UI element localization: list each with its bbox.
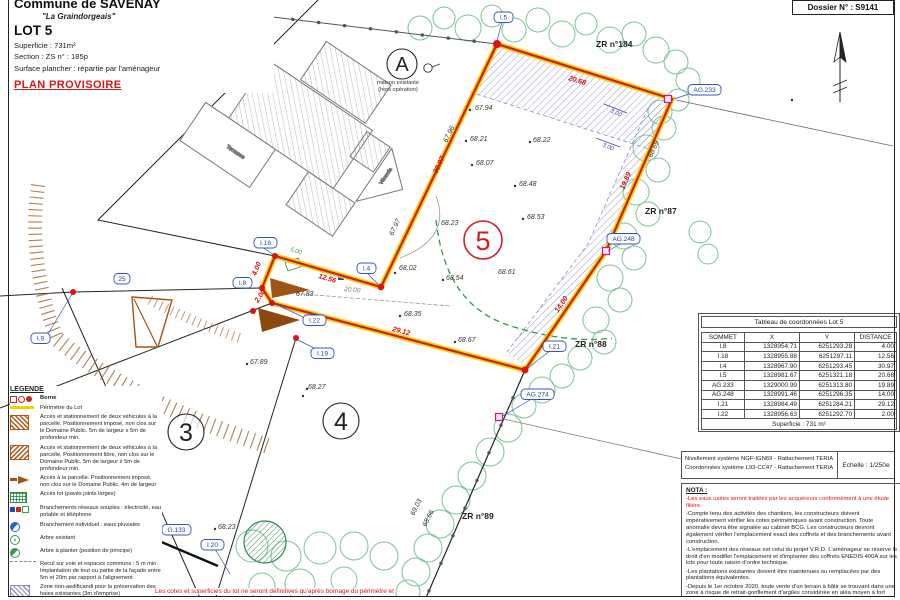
coord-row: I.51328981.676251321.1820.68 [702,371,897,381]
elevation-label: 68.21 [470,136,488,143]
legend-item-paves: Accès lot (pavés joints larges) [10,491,162,503]
coord-table-footer: Superficie : 731 m² [701,419,897,430]
legend-item-acces-parcelle: Accès à la parcelle. Positionnement impo… [10,475,162,489]
access-arrow-icon [10,475,40,484]
col-header: SOMMET [702,333,745,343]
point-label-i18: I.18 [254,238,277,249]
point-label-25: 25 [114,274,130,285]
non-aedificandi-icon [10,584,40,598]
dim-label: 4.00 [249,260,263,277]
coord-row: I.81328954.716251293.284.00 [702,342,897,352]
access-imposed-icon [10,414,40,430]
svg-text:AG.233: AG.233 [693,87,716,94]
elevation-label: 68.66 [422,509,436,528]
point-label-i21: I.21 [543,341,566,352]
legend-item-branchements: Branchements réseaux souples : électrici… [10,505,162,519]
point-label-i5: I.5 [494,12,513,23]
surface-line: Surface plancher : répartie par l'aménag… [14,64,274,73]
existing-tree-icon [10,535,40,546]
place-name: "La Graindorgeais" [42,12,274,21]
elevation-label: 68.22 [533,137,551,144]
point-label-i22: I.22 [303,315,326,326]
elevation-label: 68.53 [527,214,545,221]
legend: LEGENDE Borne Périmètre du Lot Accès et … [10,386,162,600]
paved-access-icon [10,491,40,503]
coord-header-row: SOMMET X Y DISTANCE [702,333,897,343]
nota-item: -Les eaux usées seront traitées par les … [686,496,898,510]
point-label-i20: I.20 [201,540,224,551]
superficie-line: Superficie : 731m² [14,41,274,50]
col-header: Y [799,333,854,343]
svg-text:G.133: G.133 [168,527,186,534]
elevation-label: 68.35 [404,311,422,318]
svg-text:I.8: I.8 [239,280,247,287]
coordinates-table: Tableau de coordonnées Lot 5 SOMMET X Y … [698,313,900,432]
perimeter-line-icon [10,405,40,409]
access-free-icon [10,445,40,461]
elevation-label: 69.03 [410,498,424,517]
point-label-i8: I.8 [233,278,252,289]
svg-text:I.9: I.9 [37,336,45,343]
dim-label-gray: 20.00 [343,286,361,295]
svg-text:AG.274: AG.274 [526,392,549,399]
lot-circle-5: 5 [464,221,502,259]
section-line: Section : ZS n° : 185p [14,52,274,61]
svg-text:I.22: I.22 [309,318,320,325]
nota-item: -L'emplacement des réseaux est celui du … [686,547,898,567]
svg-text:I.21: I.21 [549,344,560,351]
zone-non-aedificandi [470,47,670,368]
elevation-label: 68.23 [441,220,459,227]
col-header: DISTANCE [855,333,897,343]
col-header: X [744,333,799,343]
point-label-i4: I.4 [357,263,376,274]
north-arrow-icon [833,32,847,102]
plan-sheet: Terrasse Véranda [0,0,900,600]
svg-text:AG.248: AG.248 [612,236,635,243]
footer-disclaimer: Les cotes et superficies du lot ne seron… [155,588,394,595]
lot-circle-3: 3 [168,414,204,450]
elevation-label: 68.61 [498,269,516,276]
rainwater-icon [10,522,40,533]
legend-item-arbre-existant: Arbre existant [10,535,162,546]
point-label-i9: I.9 [31,333,50,344]
elevation-label: 67.83 [296,291,314,298]
point-label-g133: G.133 [162,525,191,536]
elevation-label: 68.67 [458,337,477,344]
commune-title: Commune de SAVENAY [14,0,274,11]
svg-text:I.5: I.5 [500,15,508,22]
scale-label: Echelle : 1/250e [838,452,894,478]
tree-to-plant-icon [10,548,40,559]
network-connections-icon [10,505,40,513]
elevation-label: 68.48 [519,181,537,188]
lot-circle-a: A [387,49,417,79]
dossier-number: Dossier N° : S9141 [792,0,894,15]
svg-text:3: 3 [179,419,193,447]
nota-item: -Compte tenu des activités des chantiers… [686,511,898,545]
nota-title: NOTA : [686,487,898,494]
borne-icon [10,395,40,403]
tree-cluster-east [512,116,718,418]
zone-label-zr184: ZR n°184 [596,39,633,49]
elevation-label: 67.89 [250,359,268,366]
coord-row: I.181328955.886251297.1112.56 [702,352,897,362]
legend-item-acces-libre: Accès et stationnement de deux véhicules… [10,445,162,473]
coord-row: I.41328967.906251293.4530.97 [702,361,897,371]
svg-text:A: A [395,54,409,76]
access-markers [132,258,344,347]
house-note-line2: (hors opération) [378,87,418,93]
survey-station-icon [424,64,440,72]
setback-line-icon [10,561,40,563]
nota-item: -Les plantations existantes doivent être… [686,569,898,583]
nota-box: NOTA : -Les eaux usées seront traitées p… [681,483,900,600]
elevation-label: 68.27 [308,384,327,391]
title-block: Commune de SAVENAY "La Graindorgeais" LO… [14,0,274,93]
svg-text:I.20: I.20 [207,542,218,549]
svg-text:4: 4 [334,408,348,436]
svg-text:I.18: I.18 [260,240,271,247]
elevation-label: 67.94 [475,105,493,112]
coord-row: AG.2331329000.996251313.8019.89 [702,380,897,390]
elevation-label: 68.23 [218,524,236,531]
elevation-label: 68.07 [476,160,495,167]
coordonnees-line: Coordonnées système L93-CC47 - Rattachem… [685,464,834,473]
zone-label-zr87: ZR n°87 [645,206,677,216]
coord-row: I.211328984.496251284.2129.12 [702,400,897,410]
zone-label-zr88: ZR n°88 [575,339,607,349]
svg-text:25: 25 [118,276,126,283]
zone-label-zr89: ZR n°89 [462,511,494,521]
lot-title: LOT 5 [14,23,274,38]
point-label-i19: I.19 [311,348,334,359]
survey-info-box: Nivellement système NGF-IGN69 - Rattache… [681,451,895,479]
legend-item-recul: Recul sur voie et espaces communs : 5 m … [10,561,162,582]
point-label-ag274: AG.274 [521,389,554,400]
legend-title: LEGENDE [10,386,162,393]
legend-item-perimetre: Périmètre du Lot [10,405,162,412]
house-note-line1: maison existante [377,80,419,86]
legend-item-acces-impose: Accès et stationnement de deux véhicules… [10,414,162,442]
point-label-ag233: AG.233 [688,85,721,96]
elevation-label: 68.54 [446,275,464,282]
legend-item-borne: Borne [10,395,162,403]
tree-to-plant [244,521,286,563]
dim-label-green: 5.00 [289,247,303,256]
coord-row: AG.2481328991.466251296.3514.00 [702,390,897,400]
lot-circle-4: 4 [323,403,359,439]
svg-text:I.4: I.4 [363,266,371,273]
elevation-label: 68.02 [399,265,417,272]
nivellement-line: Nivellement système NGF-IGN69 - Rattache… [685,455,834,464]
coord-row: I.221328956.636251292.702.00 [702,409,897,419]
elevation-label: 67.97 [388,217,402,237]
plan-status: PLAN PROVISOIRE [14,79,121,91]
coordinates-table-title: Tableau de coordonnées Lot 5 [701,316,897,328]
legend-item-eaux-pluviales: Branchement individuel : eaux pluviales [10,522,162,533]
svg-text:5: 5 [475,226,490,256]
legend-item-arbre-planter: Arbre à planter (position de principe) [10,548,162,559]
point-label-ag248: AG.248 [607,234,640,245]
svg-text:I.19: I.19 [317,351,328,358]
